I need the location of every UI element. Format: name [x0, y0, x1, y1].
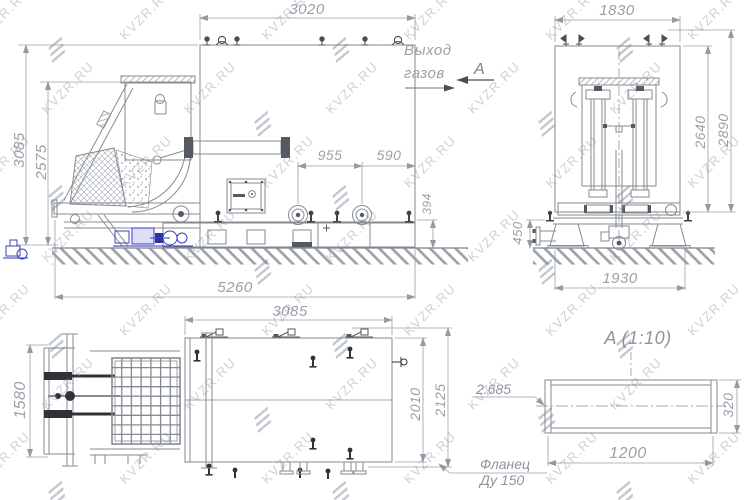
skip-plan: [44, 333, 217, 468]
drawing-canvas: 3020 3085 2575 955 590 394 5260 Выход га…: [0, 0, 750, 500]
detail-note: 2.685: [475, 381, 511, 397]
hinge-icons: [200, 329, 373, 337]
dim-nozzle-height: 394: [420, 193, 434, 215]
roof-bolt-icons: [204, 37, 369, 45]
dim-plan-top-width: 3085: [272, 303, 308, 320]
dim-side-height-inner: 2575: [33, 144, 50, 181]
drive-unit: [113, 228, 193, 246]
gas-outlet-arrow: [405, 85, 455, 92]
dim-flange-to-edge: 590: [377, 147, 402, 163]
plus-mark: [323, 225, 330, 232]
dim-flange-height: 450: [510, 221, 525, 244]
front-view: [533, 35, 693, 250]
side-view: [3, 36, 415, 259]
hopper: [121, 76, 195, 160]
section-mark-label: A: [473, 61, 485, 78]
detail-a: [536, 352, 726, 433]
front-base: [533, 150, 693, 250]
inspection-door: [227, 179, 265, 213]
dim-front-height-inner: 2640: [692, 115, 708, 149]
dim-base-width: 1930: [602, 270, 638, 287]
dim-side-height-outer: 3085: [11, 132, 28, 168]
ground: [52, 248, 715, 265]
dim-front-top-width: 1830: [599, 2, 635, 19]
plan-view: [44, 329, 407, 479]
gas-outlet-label-2: газов: [404, 65, 445, 82]
dim-side-top-width: 3020: [289, 1, 325, 18]
dim-front-height-outer: 2890: [715, 113, 731, 147]
side-valve-icon: [392, 357, 407, 367]
dim-detail-height: 320: [720, 393, 736, 418]
dim-overall-length: 5260: [217, 279, 253, 296]
pump-unit: [3, 240, 28, 259]
dim-detail-width: 1200: [609, 445, 647, 462]
column-right: [616, 86, 652, 197]
flange-note-2: Ду 150: [478, 472, 524, 488]
flange-note-1: Фланец: [480, 456, 530, 472]
plan-valve-icons: [194, 347, 354, 479]
detail-title: A (1:10): [603, 328, 671, 348]
lifting-eye-icons: [216, 36, 404, 45]
column-left: [586, 86, 622, 197]
technical-drawing: 3020 3085 2575 955 590 394 5260 Выход га…: [0, 0, 750, 500]
dim-plan-left-height: 1580: [12, 381, 29, 419]
bottom-flange-stubs: [280, 462, 366, 474]
dim-plan-right-outer: 2125: [432, 383, 448, 417]
dim-plan-right-inner: 2010: [407, 387, 423, 421]
dim-flange-span: 955: [318, 147, 343, 163]
side-view-base: [163, 223, 415, 247]
roof-fitting-icons: [561, 35, 667, 46]
gas-outlet-label-1: Выход: [404, 42, 452, 59]
grate: [112, 358, 180, 444]
side-view-body: [200, 36, 415, 231]
base-valve-icons: [214, 211, 413, 223]
